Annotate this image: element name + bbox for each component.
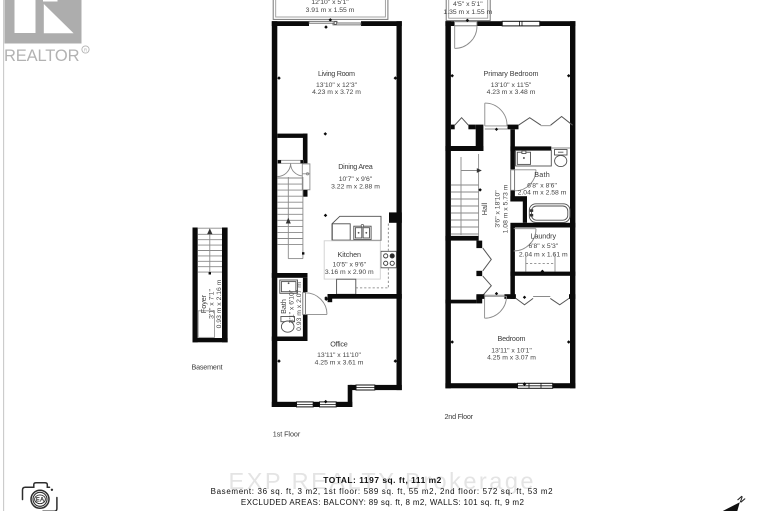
svg-text:4.25 m x 3.07 m: 4.25 m x 3.07 m	[487, 355, 536, 362]
svg-text:1st Floor: 1st Floor	[273, 430, 301, 439]
svg-text:3'1" x 6'10": 3'1" x 6'10"	[289, 289, 296, 323]
svg-text:1.08 m x 5.73 m: 1.08 m x 5.73 m	[503, 184, 510, 233]
svg-text:2nd Floor: 2nd Floor	[445, 412, 474, 421]
svg-text:13'10" x 12'3": 13'10" x 12'3"	[316, 82, 358, 89]
svg-text:Foyer: Foyer	[199, 294, 208, 313]
svg-text:Hall: Hall	[480, 202, 489, 215]
svg-text:Laundry: Laundry	[531, 231, 557, 240]
svg-text:4.23 m x 3.72 m: 4.23 m x 3.72 m	[312, 89, 361, 96]
svg-text:4.23 m x 3.48 m: 4.23 m x 3.48 m	[487, 89, 536, 96]
svg-text:2.04 m x 1.61 m: 2.04 m x 1.61 m	[519, 252, 568, 259]
svg-text:1.35 m x 1.55 m: 1.35 m x 1.55 m	[443, 9, 492, 16]
svg-text:Primary Bedroom: Primary Bedroom	[484, 69, 539, 78]
svg-text:3.22 m x 2.88 m: 3.22 m x 2.88 m	[331, 183, 380, 190]
svg-text:3'6" x 18'10": 3'6" x 18'10"	[495, 190, 502, 228]
svg-text:3.91 m x 1.55 m: 3.91 m x 1.55 m	[306, 7, 355, 14]
svg-text:13'10" x 11'5": 13'10" x 11'5"	[491, 82, 532, 89]
svg-text:Office: Office	[330, 339, 348, 348]
svg-text:10'7" x 9'6": 10'7" x 9'6"	[339, 176, 373, 183]
svg-text:Living Room: Living Room	[318, 69, 355, 78]
svg-text:2.04 m x 2.58 m: 2.04 m x 2.58 m	[518, 190, 567, 197]
svg-text:0.93 m x 2.16 m: 0.93 m x 2.16 m	[216, 279, 223, 328]
svg-text:6'8" x 5'3": 6'8" x 5'3"	[528, 243, 558, 250]
svg-text:Kitchen: Kitchen	[338, 250, 362, 259]
svg-text:4.25 m x 3.61 m: 4.25 m x 3.61 m	[315, 359, 364, 366]
svg-text:Bedroom: Bedroom	[498, 334, 526, 343]
svg-text:Dining Area: Dining Area	[338, 162, 373, 171]
svg-text:13'11" x 10'1": 13'11" x 10'1"	[491, 347, 532, 354]
svg-text:3.16 m x 2.90 m: 3.16 m x 2.90 m	[325, 269, 374, 276]
svg-text:6'8" x 8'6": 6'8" x 8'6"	[527, 182, 557, 189]
svg-text:REALTOR: REALTOR	[4, 47, 80, 65]
svg-text:Basement: Basement	[192, 362, 223, 371]
svg-text:Bath: Bath	[534, 170, 550, 179]
svg-text:10'5" x 9'6": 10'5" x 9'6"	[333, 262, 367, 269]
svg-text:13'11" x 11'10": 13'11" x 11'10"	[317, 352, 361, 359]
svg-text:TOTAL: 1197 sq. ft, 111 m2: TOTAL: 1197 sq. ft, 111 m2	[323, 475, 441, 485]
svg-text:4'5" x 5'1": 4'5" x 5'1"	[453, 1, 483, 8]
svg-text:12'10" x 5'1": 12'10" x 5'1"	[311, 0, 349, 6]
svg-text:Basement: 36 sq. ft, 3 m2, 1st: Basement: 36 sq. ft, 3 m2, 1st floor: 58…	[211, 487, 554, 496]
svg-text:Bath: Bath	[279, 299, 288, 314]
svg-text:EXCLUDED AREAS: BALCONY: 89 sq: EXCLUDED AREAS: BALCONY: 89 sq. ft, 8 m2…	[241, 498, 525, 507]
svg-text:3'1" x 7'1": 3'1" x 7'1"	[209, 289, 216, 319]
svg-text:EA: EA	[36, 498, 45, 504]
svg-text:0.93 m x 2.07 m: 0.93 m x 2.07 m	[296, 282, 303, 331]
